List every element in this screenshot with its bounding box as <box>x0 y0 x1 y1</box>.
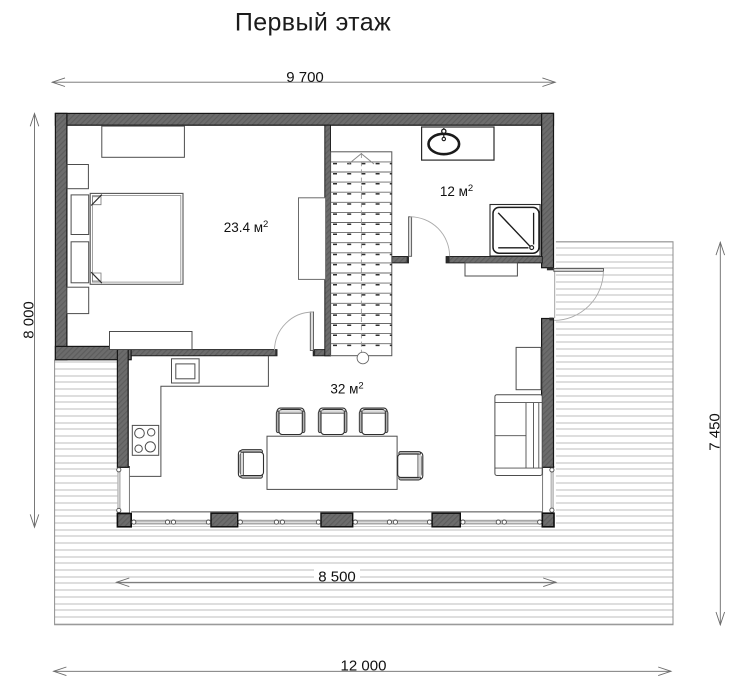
svg-text:8 500: 8 500 <box>318 568 356 585</box>
svg-text:12 000: 12 000 <box>341 657 387 674</box>
svg-text:Первый этаж: Первый этаж <box>235 8 391 36</box>
svg-text:9 700: 9 700 <box>286 69 324 86</box>
svg-text:23.4 м2: 23.4 м2 <box>224 219 269 235</box>
svg-text:8 000: 8 000 <box>21 301 38 339</box>
svg-text:7 450: 7 450 <box>707 413 724 451</box>
